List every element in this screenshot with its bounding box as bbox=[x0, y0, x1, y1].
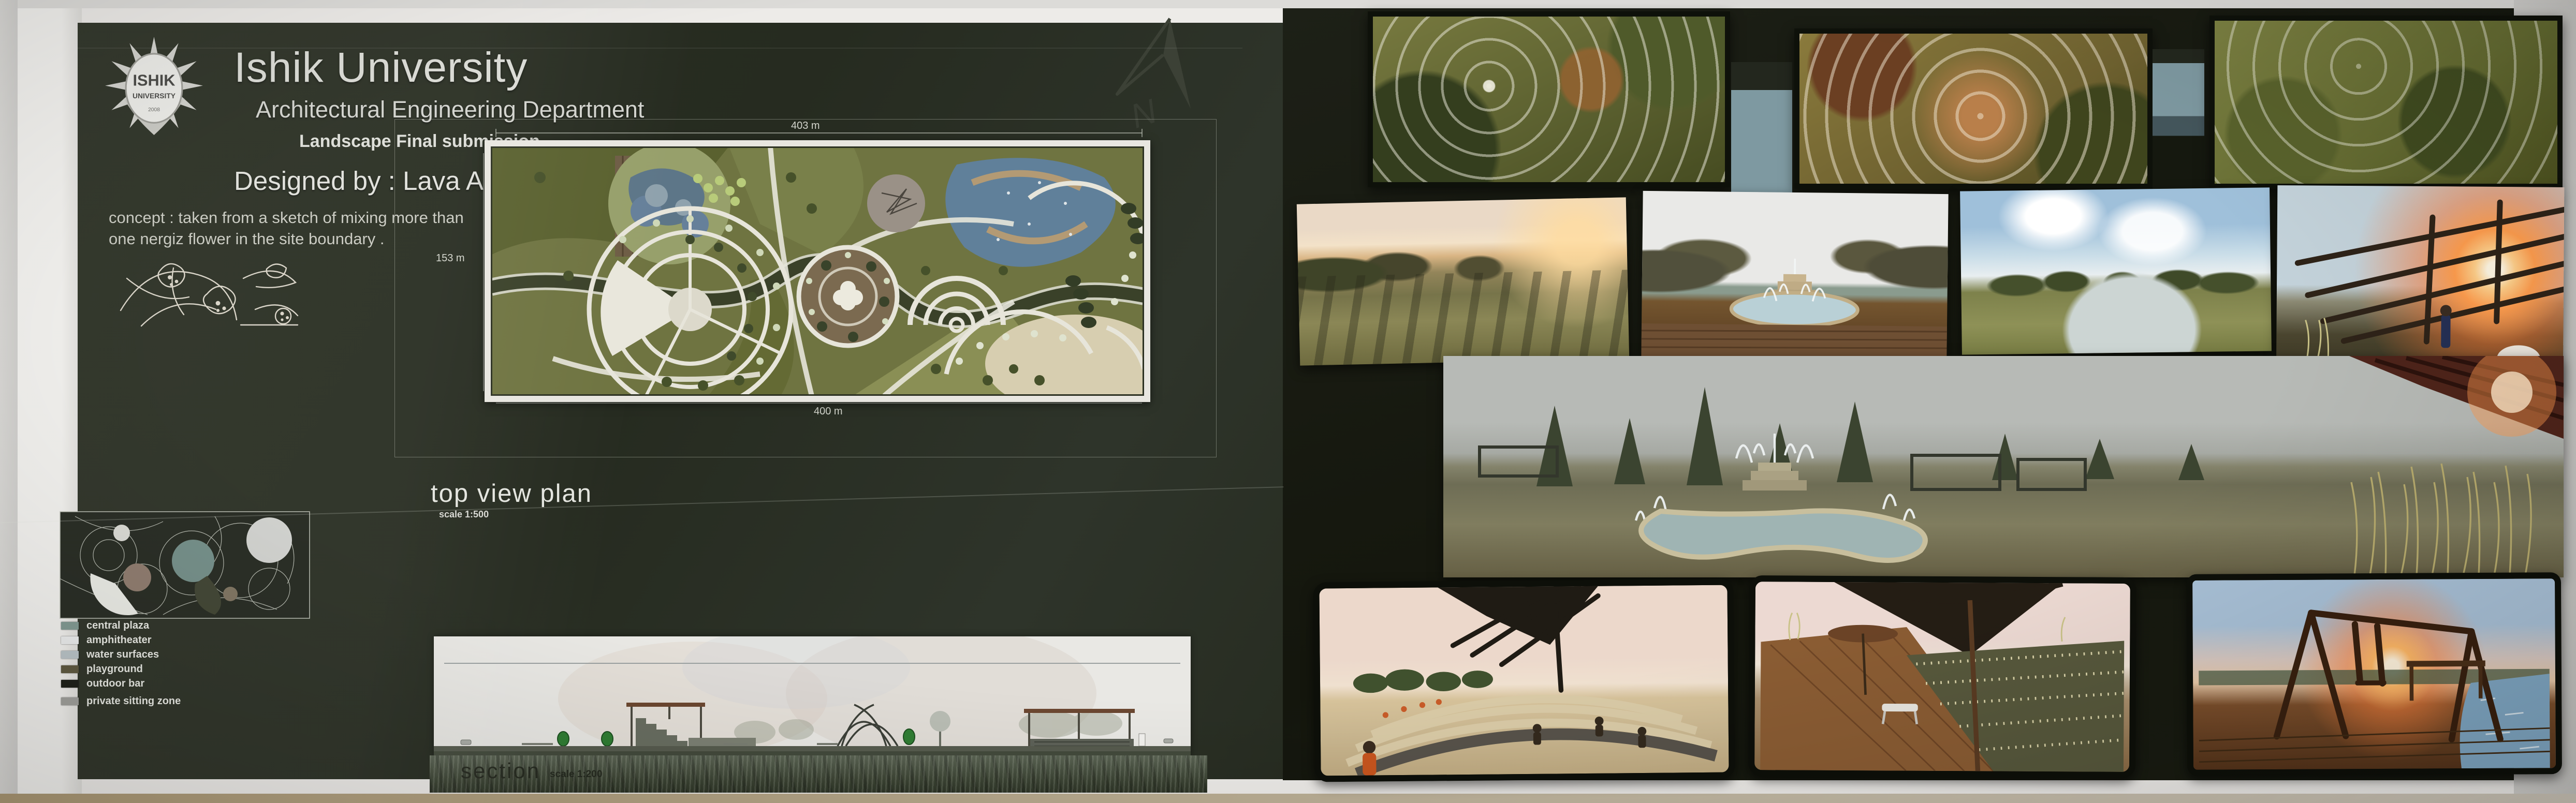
legend-item: central plaza bbox=[61, 620, 181, 632]
render-cascade-fountain-view bbox=[1641, 191, 1948, 361]
render-sunset-park-view bbox=[1297, 197, 1629, 365]
legend-item: playground bbox=[61, 663, 181, 675]
swing-frame-silhouette bbox=[2192, 578, 2556, 770]
section-grass-band: section scale 1:200 bbox=[430, 755, 1207, 793]
dimension-line-left bbox=[483, 153, 484, 391]
render-aerial-overview-3 bbox=[2209, 16, 2563, 189]
deck-silhouette bbox=[1754, 582, 2130, 772]
render-aerial-overview-1 bbox=[1368, 11, 1730, 187]
legend-swatch-water-surfaces bbox=[61, 651, 79, 659]
dimension-line-bottom bbox=[496, 403, 1142, 404]
plan-title: top view plan bbox=[431, 479, 592, 508]
legend-swatch-outdoor-bar bbox=[61, 680, 79, 688]
amphitheater-silhouette bbox=[1319, 585, 1729, 776]
legend-item: private sitting zone bbox=[61, 695, 181, 707]
dimension-label-left: 153 m bbox=[436, 252, 465, 264]
legend-label: outdoor bar bbox=[86, 678, 144, 690]
legend-label: playground bbox=[86, 663, 143, 675]
legend: central plaza amphitheater water surface… bbox=[61, 620, 181, 710]
legend-label: water surfaces bbox=[86, 649, 159, 661]
dimension-line-top bbox=[496, 132, 1142, 133]
zoning-diagram bbox=[60, 511, 310, 619]
legend-swatch-amphitheater bbox=[61, 636, 79, 644]
collage-accent-bar bbox=[2153, 49, 2204, 189]
legend-swatch-central-plaza bbox=[61, 622, 79, 630]
svg-text:ISHIK: ISHIK bbox=[133, 71, 175, 90]
concept-line-2: one nergiz flower in the site boundary . bbox=[109, 230, 384, 248]
legend-label: private sitting zone bbox=[86, 695, 181, 707]
ishik-university-logo-icon: ISHIK UNIVERSITY 2008 bbox=[104, 35, 204, 136]
fountain-silhouette bbox=[1641, 191, 1948, 361]
render-amphitheater-view bbox=[1313, 578, 1735, 782]
section-title: section bbox=[461, 759, 540, 783]
legend-swatch-playground bbox=[61, 665, 79, 673]
render-water-feature-view bbox=[1960, 187, 2272, 354]
top-view-plan-image bbox=[485, 140, 1150, 402]
render-aerial-overview-2 bbox=[1794, 28, 2153, 189]
wall-top-strip bbox=[0, 0, 2576, 8]
render-wood-deck-view bbox=[1748, 575, 2136, 778]
svg-text:2008: 2008 bbox=[148, 107, 160, 113]
fountain-plaza-silhouette bbox=[1443, 356, 2564, 577]
nergiz-flower-sketch bbox=[111, 247, 303, 334]
dimension-label-bottom: 400 m bbox=[814, 406, 843, 418]
north-arrow-icon: N bbox=[1112, 16, 1210, 133]
floor-strip bbox=[0, 794, 2576, 803]
legend-item: amphitheater bbox=[61, 634, 181, 646]
legend-label: amphitheater bbox=[86, 634, 152, 646]
dimension-tick bbox=[1141, 129, 1143, 137]
dimension-tick bbox=[495, 129, 496, 137]
legend-label: central plaza bbox=[86, 620, 149, 632]
top-view-plan-drawing bbox=[491, 146, 1144, 396]
dimension-label-top: 403 m bbox=[791, 120, 820, 132]
legend-swatch-private-sitting-zone bbox=[61, 697, 79, 705]
section-scale-label: scale 1:200 bbox=[550, 769, 602, 780]
render-playground-sunset-view bbox=[2186, 572, 2562, 776]
wall-left-strip bbox=[0, 0, 18, 803]
legend-item: outdoor bar bbox=[61, 678, 181, 690]
svg-text:UNIVERSITY: UNIVERSITY bbox=[133, 92, 176, 100]
university-title: Ishik University bbox=[234, 43, 528, 92]
presentation-board-photo: ISHIK UNIVERSITY 2008 Ishik University A… bbox=[0, 0, 2576, 803]
photo-highlight-line bbox=[78, 48, 1242, 49]
render-fountain-plaza-large bbox=[1443, 356, 2564, 577]
legend-item: water surfaces bbox=[61, 649, 181, 661]
section-drawing bbox=[434, 636, 1191, 757]
